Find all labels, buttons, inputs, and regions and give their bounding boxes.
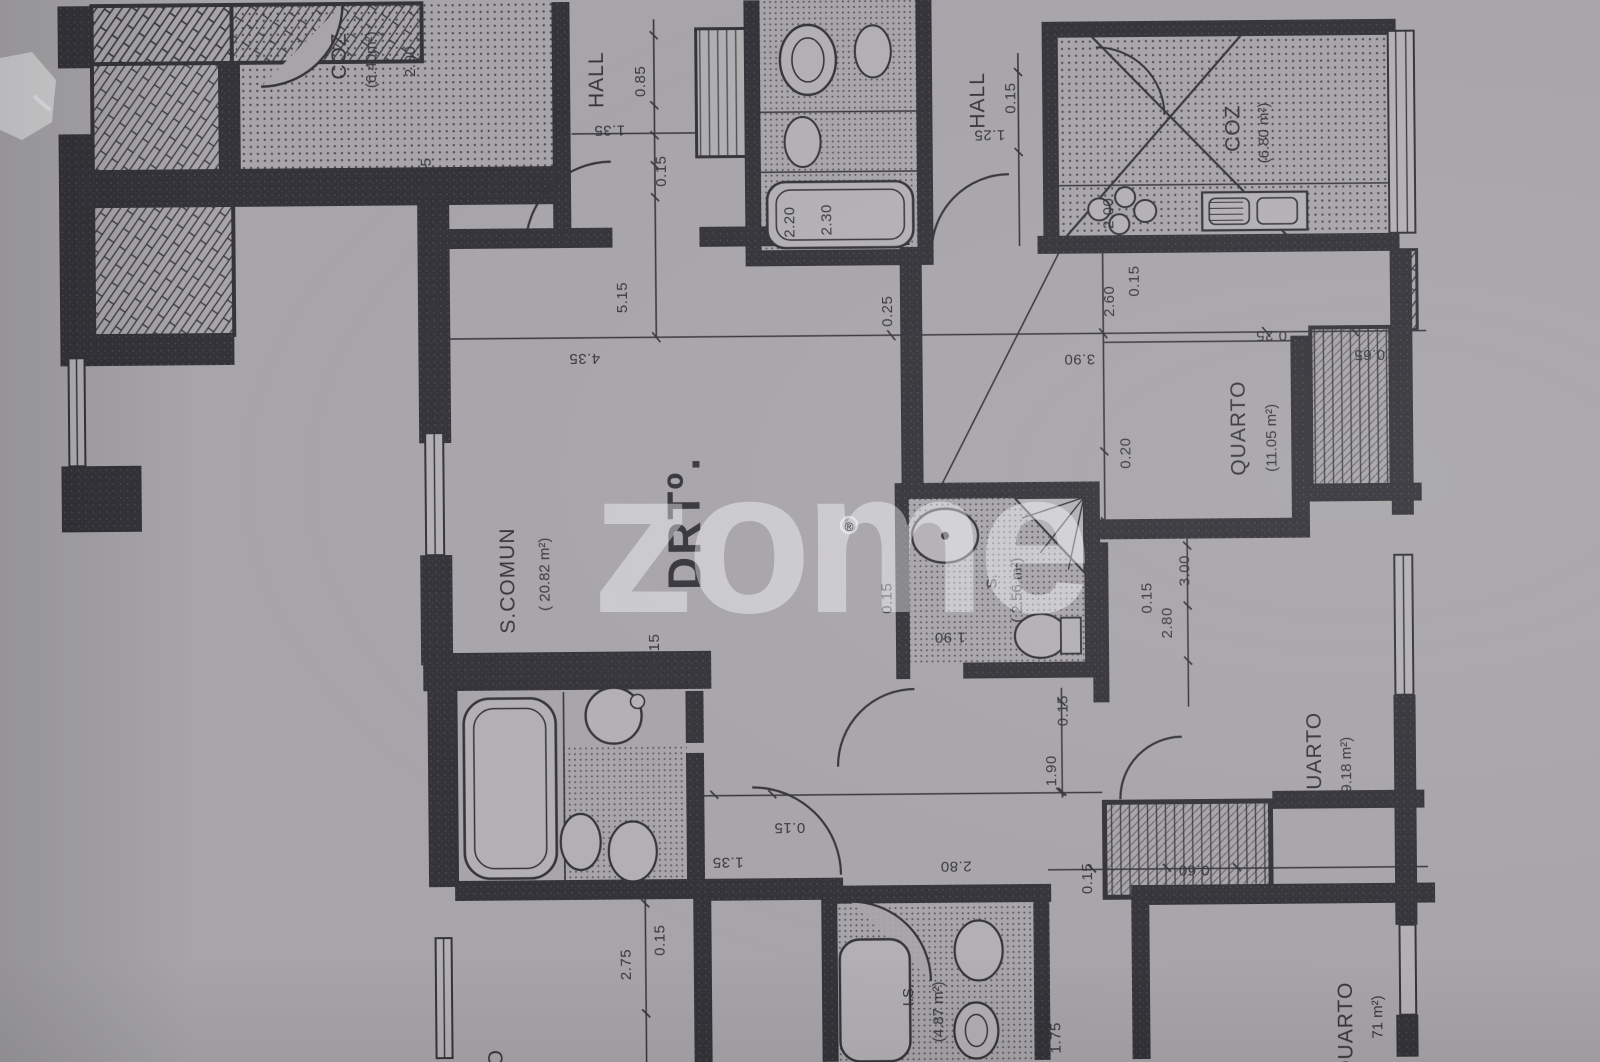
dim-label: 2.30 bbox=[818, 204, 835, 235]
room-quarto-1105-area: (11.05 m²) bbox=[1263, 404, 1281, 472]
watermark: zome ® bbox=[592, 427, 1085, 656]
dim-label: 0.15 bbox=[651, 925, 668, 956]
room-is-main: I.S. bbox=[900, 984, 917, 1007]
dim-label: 1.25 bbox=[974, 126, 1005, 143]
bathroom-left bbox=[463, 687, 705, 883]
room-coz-right: COZ bbox=[1221, 104, 1244, 152]
dim-label: 0.15 bbox=[1054, 695, 1071, 726]
dim-label: 2.00 bbox=[1100, 198, 1117, 229]
room-quarto-br: QUARTO bbox=[1334, 982, 1358, 1062]
room-quarto-918-area: (9.18 m²) bbox=[1338, 737, 1356, 798]
bathroom-top bbox=[743, 0, 933, 266]
room-quarto-bl: QUARTO bbox=[485, 1049, 509, 1062]
watermark-registered: ® bbox=[845, 520, 854, 534]
dim-label: 0.20 bbox=[1117, 437, 1134, 468]
dim-label: 0.15 bbox=[774, 819, 805, 836]
dim-label: 0.65 bbox=[1354, 346, 1385, 363]
room-coz-right-area: (6.80 m²) bbox=[1255, 102, 1273, 163]
dim-label: 5.15 bbox=[614, 282, 631, 313]
dim-label: 3.90 bbox=[1064, 350, 1095, 367]
dim-label: 0.15 bbox=[1079, 863, 1096, 894]
sink-icon bbox=[1202, 192, 1307, 231]
watermark-text: zome bbox=[592, 427, 1085, 656]
dim-label: 1.35 bbox=[712, 854, 743, 871]
room-hall-right: HALL bbox=[966, 72, 989, 129]
dim-label: 2.00 bbox=[402, 46, 419, 77]
dim-label: 3.00 bbox=[1176, 555, 1193, 586]
floorplan-drawing: COZ (6.40m²) HALL COZ (6.80 m²) HALL S.C… bbox=[0, 0, 1600, 1062]
dim-label: 1.90 bbox=[1043, 755, 1060, 786]
room-quarto-918: QUARTO bbox=[1303, 712, 1327, 807]
room-coz-left: COZ bbox=[328, 32, 351, 80]
right-outer-wall bbox=[1390, 251, 1419, 1057]
scanned-floorplan-page: COZ (6.40m²) HALL COZ (6.80 m²) HALL S.C… bbox=[0, 0, 1600, 1062]
dim-label: 0.15 bbox=[1126, 265, 1143, 296]
dim-label: 0.15 bbox=[1002, 82, 1019, 113]
stair-hatch-block bbox=[1104, 789, 1436, 1059]
room-coz-left-area: (6.40m²) bbox=[363, 31, 380, 88]
dim-label: 0.25 bbox=[426, 300, 443, 331]
dim-label: 0.60 bbox=[1178, 861, 1209, 878]
quarto-1105 bbox=[1096, 245, 1423, 540]
dim-label: 2.80 bbox=[1159, 607, 1176, 638]
room-is-main-area: (4.87 m²) bbox=[930, 981, 948, 1042]
dim-label: 0.25 bbox=[1256, 327, 1287, 344]
dim-label: 1.75 bbox=[1047, 1022, 1064, 1053]
dim-label: 0.85 bbox=[632, 66, 649, 97]
dim-label: 1.35 bbox=[594, 122, 625, 139]
dim-label: 2.20 bbox=[781, 206, 798, 237]
dim-label: 0.15 bbox=[1138, 582, 1155, 613]
dim-label: 0.25 bbox=[418, 158, 435, 189]
dim-label: 0.25 bbox=[879, 296, 896, 327]
dim-label: 4.35 bbox=[569, 350, 600, 367]
dim-label: 2.60 bbox=[1101, 286, 1118, 317]
scan-glare bbox=[0, 52, 56, 140]
dim-label: 2.75 bbox=[618, 949, 635, 980]
room-scomun: S.COMUN bbox=[496, 527, 520, 633]
room-scomun-area: ( 20.82 m²) bbox=[536, 537, 554, 611]
room-quarto-1105: QUARTO bbox=[1227, 381, 1251, 476]
dim-label: 0.15 bbox=[653, 156, 670, 187]
dim-label: 2.80 bbox=[940, 858, 971, 875]
room-quarto-br-area: 71 m²) bbox=[1369, 995, 1386, 1038]
room-hall-left: HALL bbox=[585, 51, 608, 108]
